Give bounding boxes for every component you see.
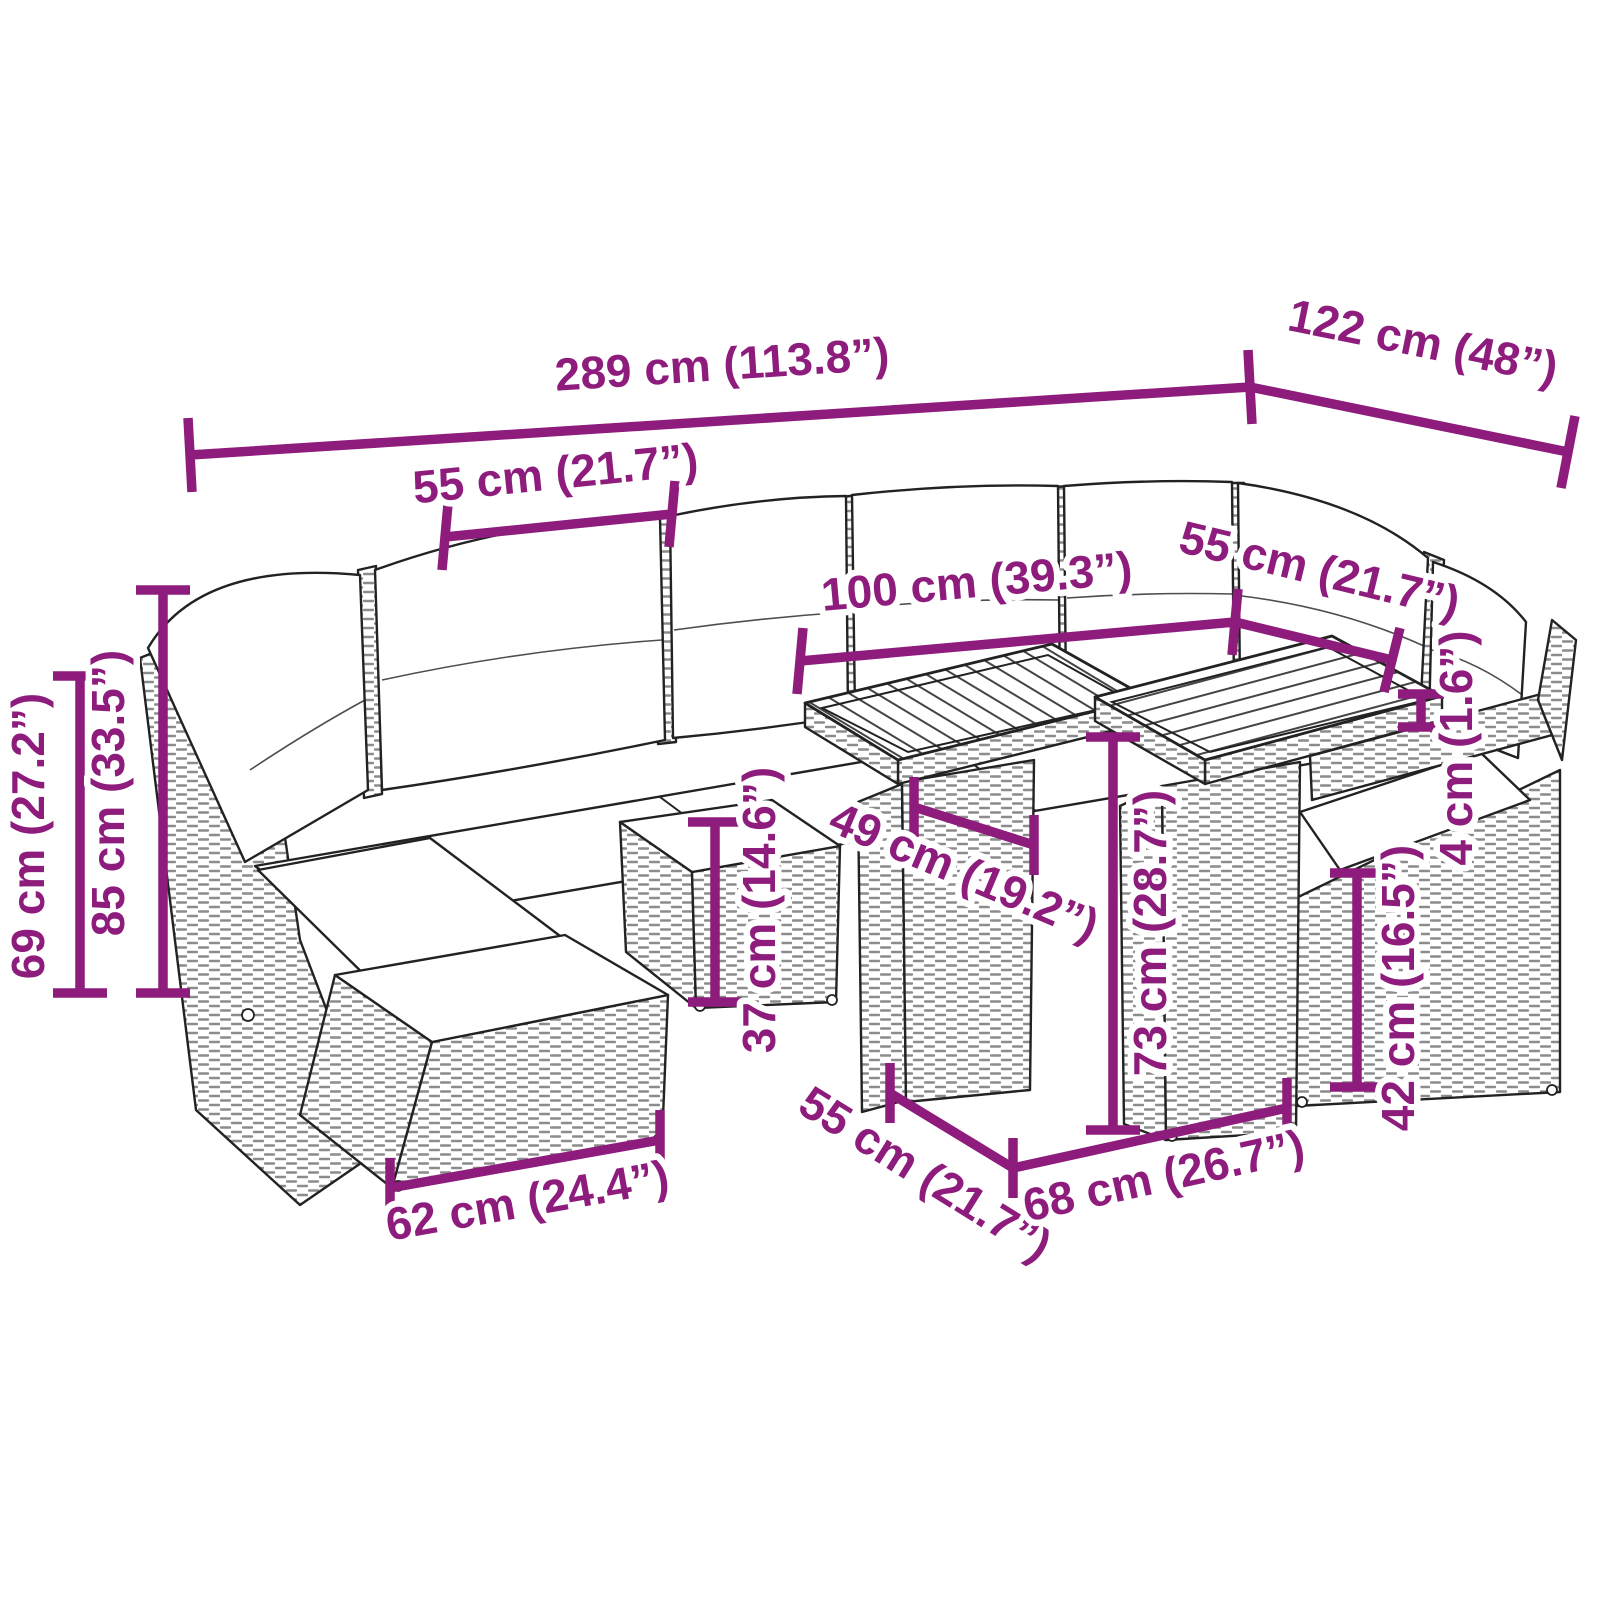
dim-label: 42 cm (16.5”)	[1372, 845, 1424, 1131]
diagram-svg: 289 cm (113.8”) 122 cm (48”) 55 cm (21.7…	[0, 0, 1600, 1600]
dimension-diagram: 289 cm (113.8”) 122 cm (48”) 55 cm (21.7…	[0, 0, 1600, 1600]
small-stool	[620, 800, 840, 1011]
dim-label: 55 cm (21.7”)	[410, 433, 700, 514]
dim-label: 55 cm (21.7”)	[790, 1076, 1060, 1272]
dim-label: 4 cm (1.6”)	[1430, 630, 1482, 865]
dim-label: 37 cm (14.6”)	[733, 767, 785, 1053]
dim-label: 289 cm (113.8”)	[553, 327, 891, 401]
dim-overall-depth: 122 cm (48”)	[1250, 289, 1575, 488]
dim-label: 69 cm (27.2”)	[2, 693, 54, 979]
screw-hole	[242, 1009, 254, 1021]
dim-label: 85 cm (33.5”)	[82, 650, 134, 936]
dim-label: 122 cm (48”)	[1284, 289, 1562, 395]
dim-overall-width: 289 cm (113.8”)	[188, 327, 1252, 492]
dim-label: 73 cm (28.7”)	[1124, 790, 1176, 1076]
